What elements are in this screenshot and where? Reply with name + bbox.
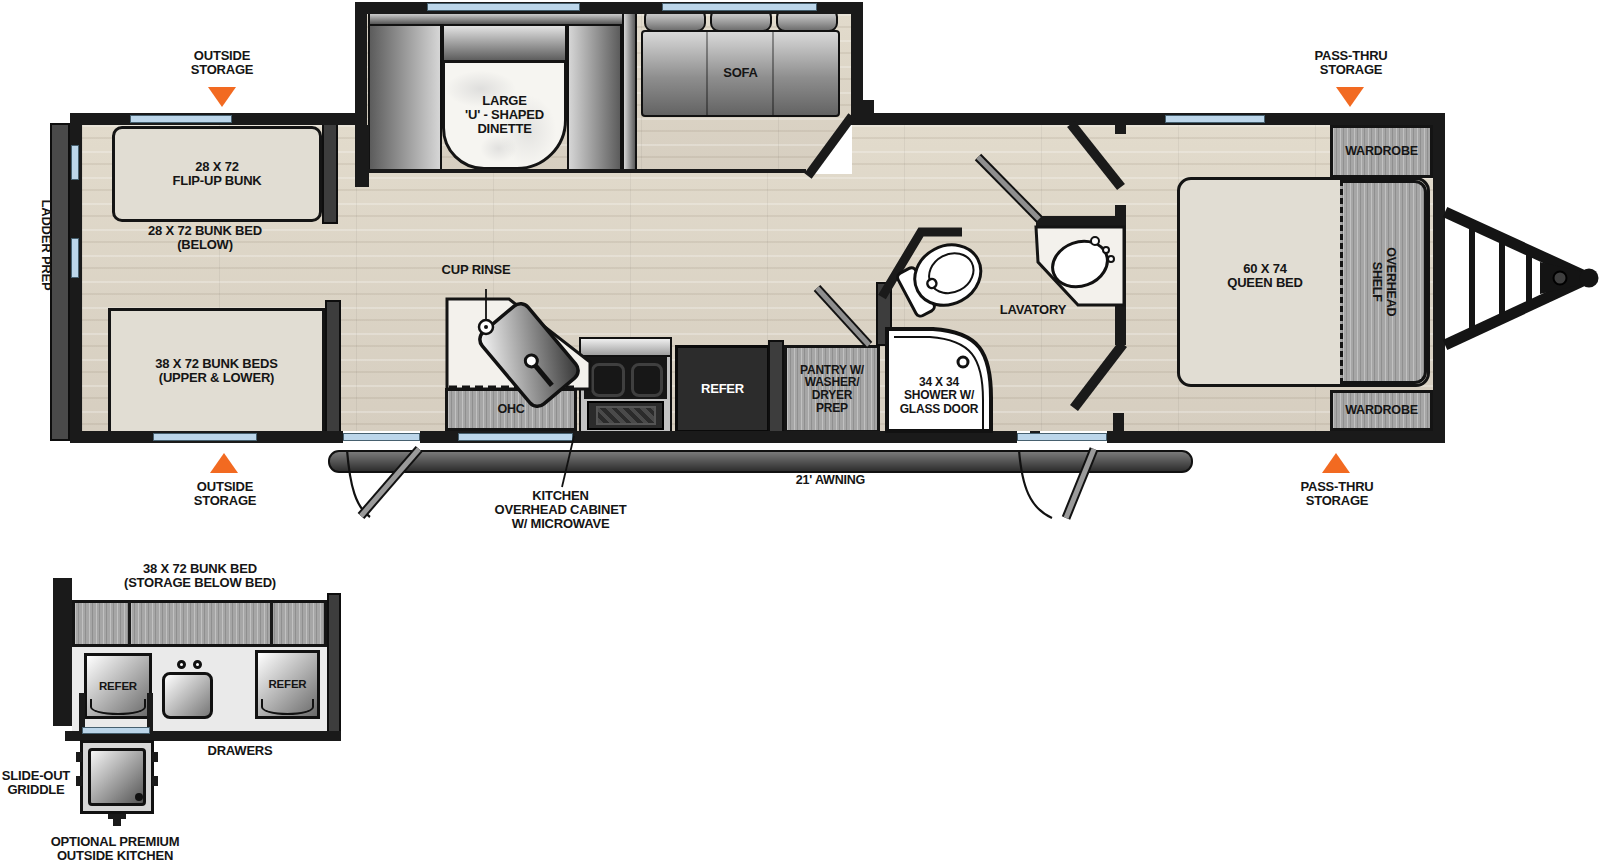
floorplan-diagram: 28 X 72 FLIP-UP BUNK 38 X 72 BUNK BEDS (… — [0, 0, 1600, 864]
griddle-notch — [152, 776, 158, 786]
outside-refer-left: REFER — [84, 653, 152, 719]
sofa-seam — [772, 32, 774, 115]
ohc-label: OHC — [497, 403, 524, 417]
outside-storage-bottom-marker-icon — [210, 453, 238, 473]
window-bedroom-top — [1165, 115, 1265, 123]
inset-right-post — [327, 593, 341, 738]
shower-label: 34 X 34 SHOWER W/ GLASS DOOR — [886, 372, 992, 420]
pass-thru-top-marker-icon — [1336, 87, 1364, 107]
wardrobe-rear-label: WARDROBE — [1345, 145, 1418, 159]
entry-door-threshold — [343, 433, 420, 441]
pantry-label: PANTRY W/ WASHER/ DRYER PREP — [800, 364, 864, 414]
bath-wall-post — [876, 282, 892, 346]
outside-refer-right: REFER — [255, 650, 320, 719]
stove-cooktop — [584, 357, 667, 399]
bottom-wall-front — [1107, 431, 1445, 443]
outside-storage-top-label: OUTSIDE STORAGE — [152, 46, 292, 80]
outside-kitchen-caption: OPTIONAL PREMIUM OUTSIDE KITCHEN — [35, 834, 195, 864]
griddle-notch — [76, 776, 82, 786]
wall-stub-bottom — [1113, 413, 1124, 443]
refer-door-arc — [90, 699, 146, 715]
refrigerator: REFER — [675, 345, 770, 433]
wall-stub-bath — [862, 100, 874, 115]
bunk-post-upper — [322, 122, 338, 224]
window-bottom-kitchen — [458, 433, 573, 441]
lavatory-wall — [1036, 216, 1124, 227]
outside-storage-top-marker-icon — [208, 87, 236, 107]
pass-thru-bottom-marker-icon — [1322, 453, 1350, 473]
slideout-left-wall — [355, 2, 367, 125]
sofa-label: SOFA — [723, 66, 758, 80]
stove — [579, 337, 672, 433]
burner-grate — [631, 363, 663, 397]
inset-left-wall — [53, 578, 72, 726]
griddle-handle-grip — [113, 819, 121, 826]
sofa: SOFA — [641, 30, 840, 117]
flip-up-bunk-label: 28 X 72 FLIP-UP BUNK — [172, 160, 261, 189]
flip-up-bunk: 28 X 72 FLIP-UP BUNK — [112, 126, 322, 222]
refer-label: REFER — [701, 382, 744, 396]
griddle-notch — [76, 752, 82, 762]
kitchen-divider-post — [768, 340, 784, 438]
inset-bunk-seam — [128, 602, 131, 645]
trailer-tongue — [1445, 212, 1599, 345]
stove-backsplash — [581, 339, 670, 357]
window-rear-wall-lower — [71, 238, 79, 278]
window-rear-top — [130, 115, 232, 123]
coupler-pin — [1554, 272, 1567, 285]
pantry-cabinet: PANTRY W/ WASHER/ DRYER PREP — [784, 345, 880, 433]
top-wall-front — [851, 113, 1445, 125]
dinette-bench-middle — [442, 24, 567, 64]
outside-faucet-dot — [177, 660, 186, 669]
drawers-label: DRAWERS — [195, 743, 285, 759]
slide-out-griddle-label: SLIDE-OUT GRIDDLE — [0, 768, 72, 798]
ladder-prep-label: LADDER PREP — [38, 175, 54, 315]
kitchen-cabinet-label: KITCHEN OVERHEAD CABINET W/ MICROWAVE — [478, 487, 643, 533]
oven-vent — [596, 406, 656, 425]
griddle-notch — [152, 752, 158, 762]
inset-window — [82, 727, 150, 734]
cup-rinse-label: CUP RINSE — [416, 262, 536, 278]
burner-grate — [591, 363, 625, 397]
griddle-rail — [147, 693, 153, 731]
wall-stub-top — [1115, 122, 1126, 134]
overhead-shelf-label: OVERHEAD SHELF — [1370, 242, 1398, 323]
lower-bunk-label: 38 X 72 BUNK BEDS (UPPER & LOWER) — [155, 357, 277, 386]
slide-out-griddle — [80, 740, 154, 814]
slideout-left-stub — [355, 125, 369, 187]
window-bottom-bunk — [153, 433, 257, 441]
hitch-ball — [1580, 269, 1599, 288]
griddle-rail — [79, 693, 85, 731]
awning-label: 21' AWNING — [748, 473, 913, 489]
inset-bunk-bed — [72, 600, 327, 647]
kitchen-ohc-cabinet: OHC — [445, 388, 577, 431]
dinette-label: LARGE 'U' - SHAPED DINETTE — [465, 94, 544, 137]
lower-bunk-beds: 38 X 72 BUNK BEDS (UPPER & LOWER) — [108, 308, 325, 434]
queen-bed-label: 60 X 74 QUEEN BED — [1190, 262, 1340, 291]
dinette-bench-right — [567, 24, 622, 172]
inset-bunk-seam — [270, 602, 273, 645]
pass-thru-bottom-label: PASS-THRU STORAGE — [1267, 477, 1407, 511]
dinette-bench-left — [368, 24, 442, 172]
outside-faucet-dot — [193, 660, 202, 669]
dinette-armrest — [622, 8, 637, 172]
coupler — [1540, 262, 1584, 294]
outside-storage-bottom-label: OUTSIDE STORAGE — [155, 477, 295, 511]
wardrobe-front: WARDROBE — [1330, 390, 1433, 431]
bath-bedroom-wall — [1115, 205, 1126, 345]
wardrobe-rear: WARDROBE — [1330, 125, 1433, 178]
wardrobe-front-label: WARDROBE — [1345, 404, 1418, 418]
front-wall — [1433, 113, 1445, 443]
griddle-knob — [135, 793, 143, 801]
window-slideout-left — [427, 3, 580, 11]
entry-door2-threshold — [1017, 433, 1107, 441]
window-rear-wall-upper — [71, 145, 79, 180]
oven-front — [587, 401, 664, 430]
awning-bar — [328, 450, 1193, 473]
window-slideout-right — [662, 3, 817, 11]
lavatory-label: LAVATORY — [973, 302, 1093, 318]
overhead-shelf: OVERHEAD SHELF — [1340, 180, 1427, 384]
bunk-post-lower — [325, 300, 341, 443]
outside-sink — [162, 672, 213, 719]
pass-thru-top-label: PASS-THRU STORAGE — [1281, 46, 1421, 80]
dinette-table: LARGE 'U' - SHAPED DINETTE — [442, 60, 567, 170]
outside-kitchen-title: 38 X 72 BUNK BED (STORAGE BELOW BED) — [110, 560, 290, 592]
sofa-seam — [706, 32, 708, 115]
refer-door-arc — [261, 699, 314, 715]
bunk-below-label: 28 X 72 BUNK BED (BELOW) — [115, 222, 295, 254]
